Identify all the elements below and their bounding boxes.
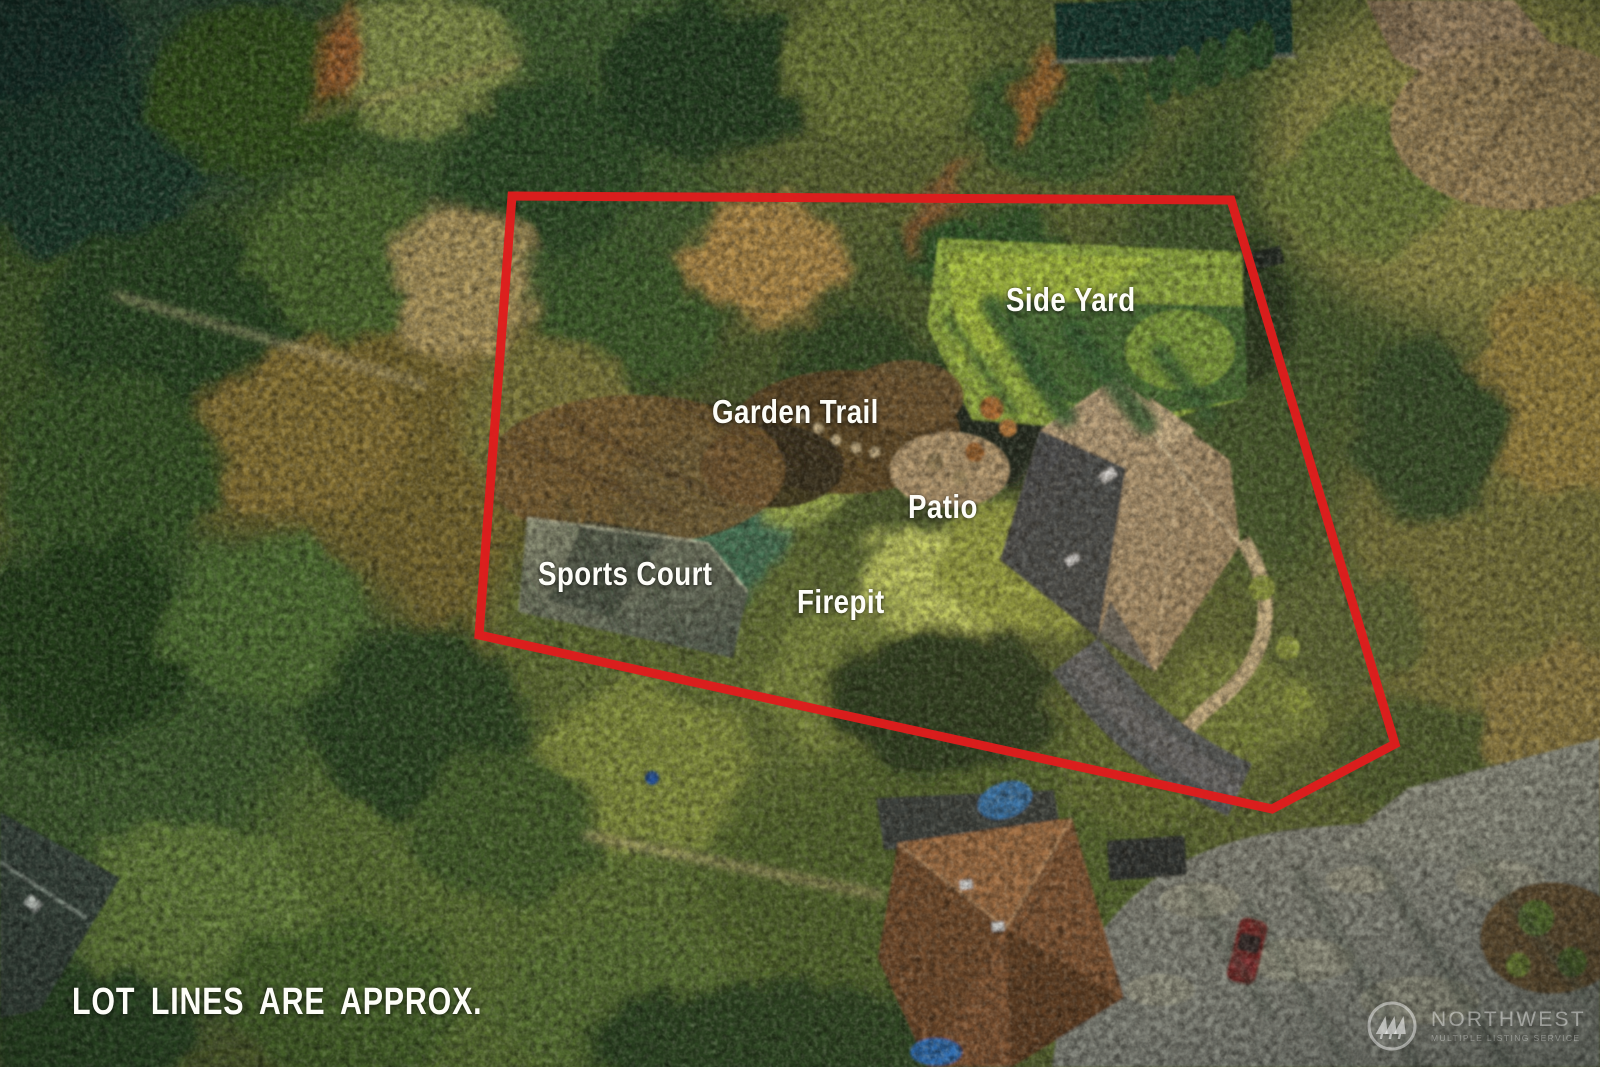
lot-lines-disclaimer: LOT LINES ARE APPROX. bbox=[72, 983, 482, 1021]
label-patio: Patio bbox=[908, 490, 978, 523]
label-sports-court: Sports Court bbox=[538, 557, 712, 590]
watermark-title: NORTHWEST bbox=[1431, 1009, 1586, 1030]
label-firepit: Firepit bbox=[797, 585, 885, 618]
watermark-subtitle: MULTIPLE LISTING SERVICE bbox=[1431, 1034, 1586, 1043]
nwmls-watermark: NORTHWEST MULTIPLE LISTING SERVICE bbox=[1366, 1000, 1586, 1052]
aerial-photo-illustration bbox=[0, 0, 1600, 1067]
nwmls-watermark-text: NORTHWEST MULTIPLE LISTING SERVICE bbox=[1431, 1009, 1586, 1043]
label-side-yard: Side Yard bbox=[1006, 283, 1136, 316]
aerial-photo: Side Yard Garden Trail Patio Sports Cour… bbox=[0, 0, 1600, 1067]
label-garden-trail: Garden Trail bbox=[712, 395, 879, 428]
evergreen-trees-circle-icon bbox=[1366, 1000, 1418, 1052]
